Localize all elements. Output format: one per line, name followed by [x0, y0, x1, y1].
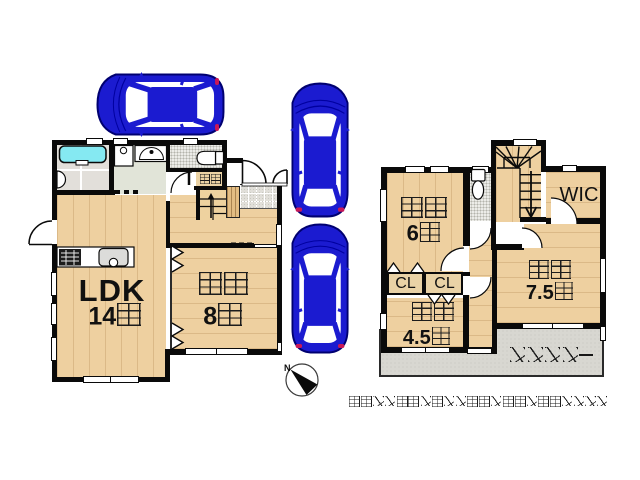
svg-text:N: N	[284, 363, 291, 373]
